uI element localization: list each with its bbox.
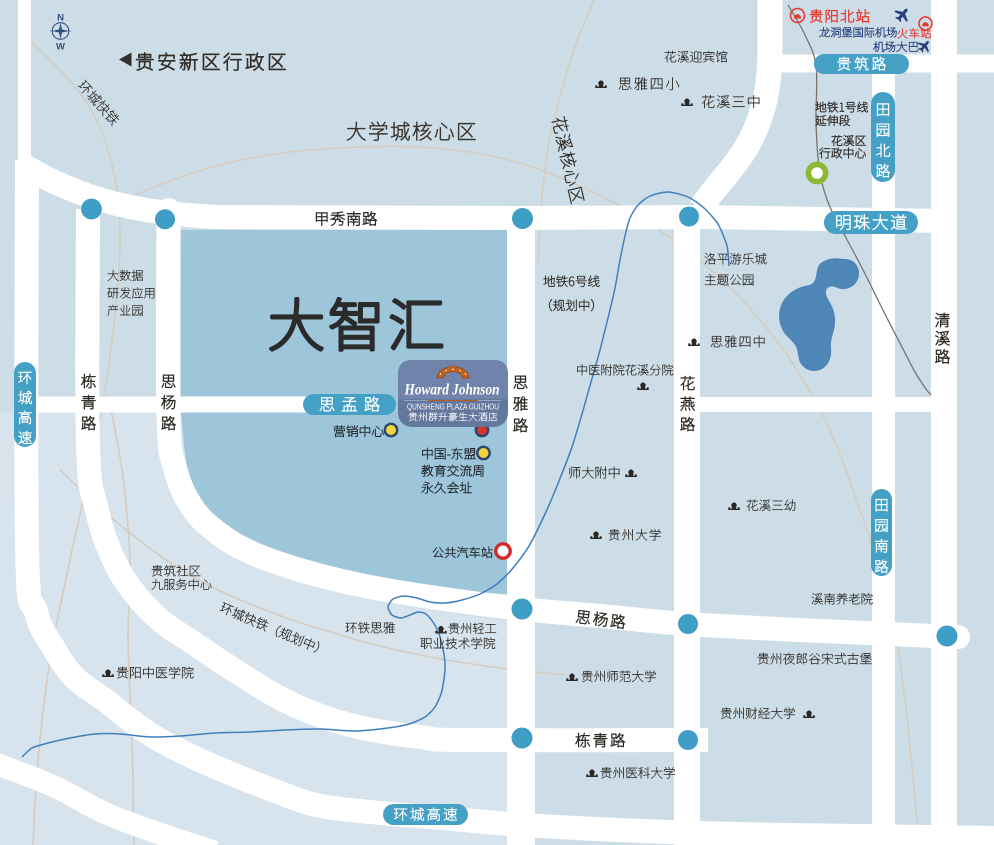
svg-text:QUNSHENG PLAZA GUIZHOU: QUNSHENG PLAZA GUIZHOU bbox=[407, 402, 499, 412]
svg-text:N: N bbox=[57, 13, 64, 24]
svg-text:Howard Johnson: Howard Johnson bbox=[404, 382, 500, 399]
svg-text:W: W bbox=[56, 42, 65, 53]
